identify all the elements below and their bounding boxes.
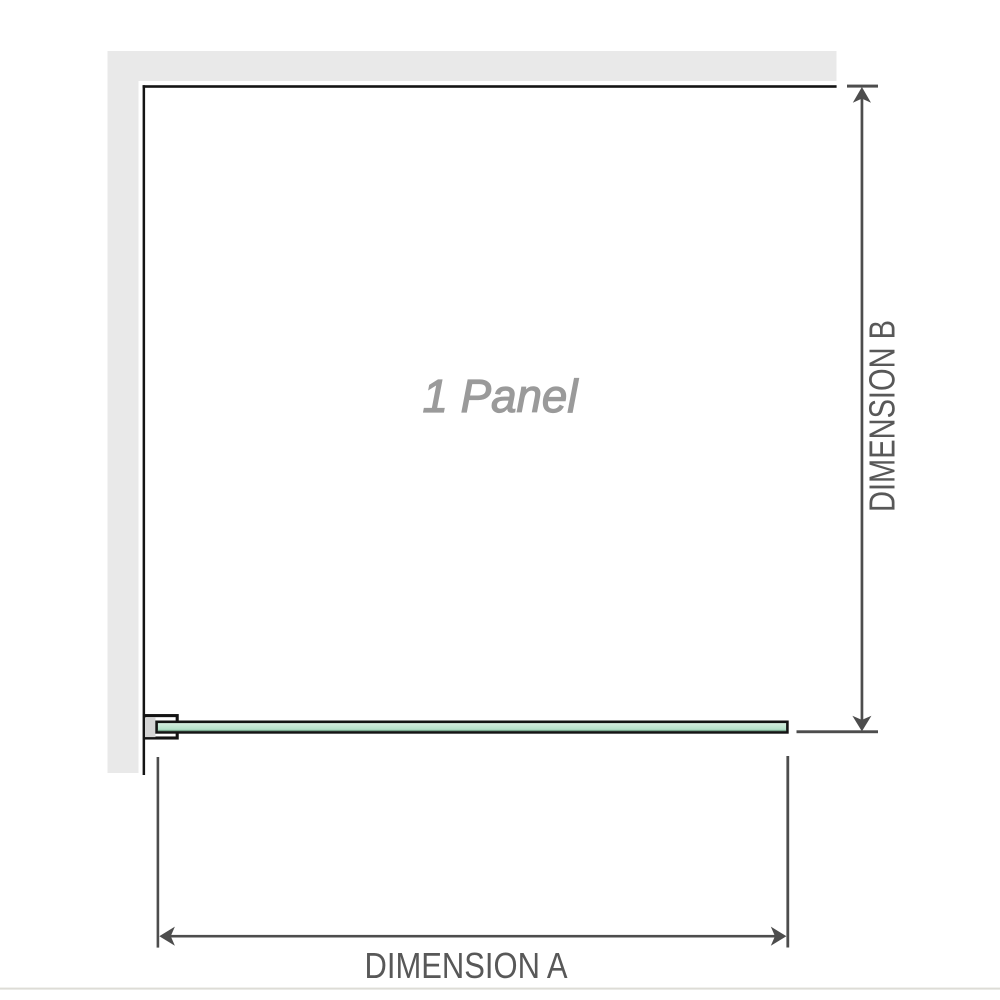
svg-text:1 Panel: 1 Panel — [423, 370, 580, 422]
svg-text:DIMENSION A: DIMENSION A — [365, 945, 568, 986]
svg-text:DIMENSION B: DIMENSION B — [862, 320, 903, 512]
